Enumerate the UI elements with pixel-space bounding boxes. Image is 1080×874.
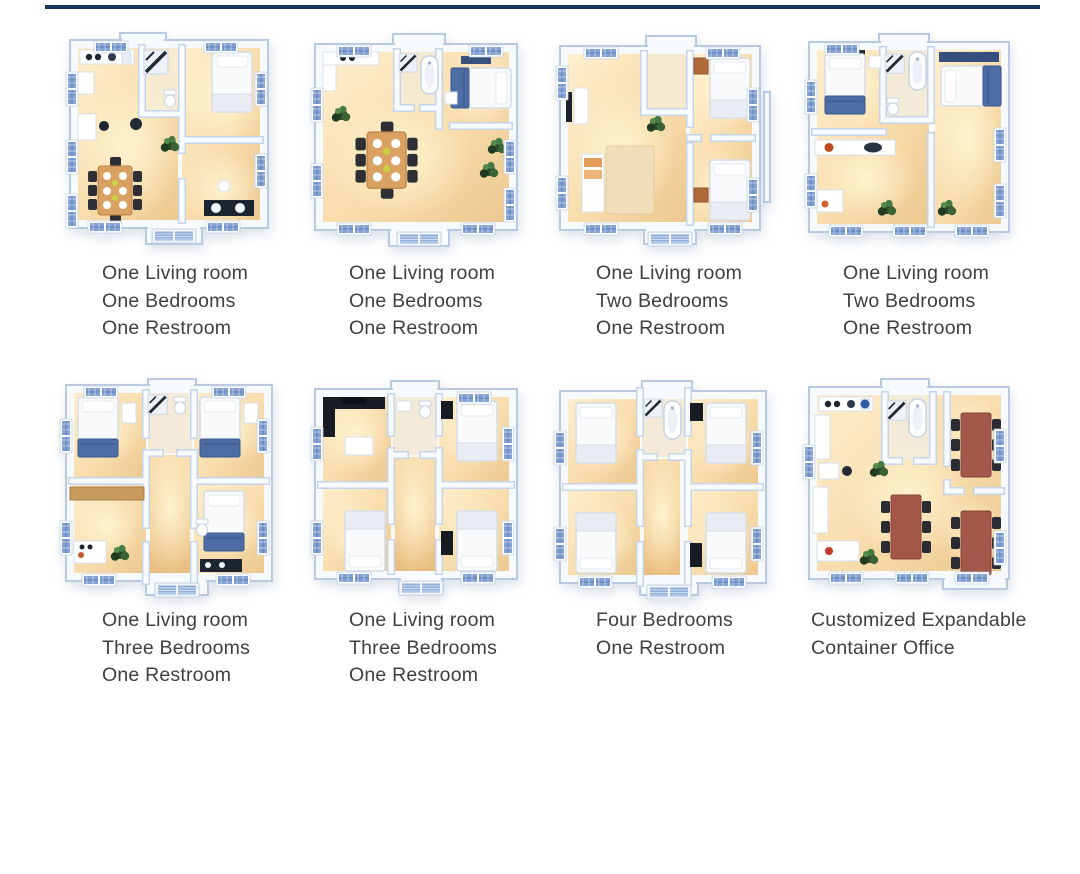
window [337, 45, 371, 57]
wood-counter [70, 487, 144, 500]
window [216, 574, 250, 586]
desk-dark [690, 543, 702, 567]
burner [825, 143, 834, 152]
bathtub [909, 399, 926, 437]
window [805, 80, 817, 114]
floor-plan-1-image [54, 28, 282, 252]
bed [204, 491, 244, 551]
plan-caption: One Living room One Bedrooms One Restroo… [52, 260, 299, 343]
fridge [78, 72, 94, 94]
shower [644, 399, 662, 417]
window [257, 521, 269, 555]
shower [144, 50, 168, 74]
window [708, 223, 742, 235]
door-mat [647, 585, 691, 599]
plan-caption: One Living room Three Bedrooms One Restr… [52, 607, 299, 690]
bed [576, 513, 616, 573]
window [556, 176, 568, 210]
plan-caption: One Living room One Bedrooms One Restroo… [299, 260, 546, 343]
caption-line: One Living room [349, 260, 546, 288]
window [803, 445, 815, 479]
chair [842, 466, 852, 476]
floor-plan-6-image [301, 375, 529, 599]
cabinet [813, 487, 828, 533]
window [255, 72, 267, 106]
window [504, 140, 516, 174]
window [457, 392, 491, 404]
toilet [196, 519, 208, 536]
product-card-4: One Living room Two Bedrooms One Restroo… [793, 28, 1040, 375]
window [554, 431, 566, 465]
window [706, 47, 740, 59]
caption-line: One Bedrooms [349, 288, 546, 316]
sink [864, 143, 882, 153]
island [345, 437, 373, 455]
bed [457, 511, 497, 571]
bed [706, 513, 746, 573]
caption-line: One Restroom [349, 662, 546, 690]
toilet [164, 90, 176, 107]
window [337, 572, 371, 584]
plan-caption: One Living room Two Bedrooms One Restroo… [546, 260, 793, 343]
window [895, 572, 929, 584]
shower [887, 401, 906, 420]
caption-line: Container Office [811, 635, 1040, 663]
caption-line: One Restroom [596, 635, 793, 663]
window [206, 221, 240, 233]
window [469, 45, 503, 57]
caption-line: One Restroom [843, 315, 1040, 343]
toilet [174, 397, 186, 414]
basin [397, 401, 411, 411]
bed [576, 403, 616, 463]
bed [825, 54, 865, 114]
tv-cabinet [574, 88, 588, 124]
bed [345, 511, 385, 571]
nightstand [694, 58, 708, 74]
window [60, 419, 72, 453]
window [337, 223, 371, 235]
window [504, 188, 516, 222]
rug [606, 146, 654, 214]
floor-plan-3-image [548, 28, 776, 252]
reception-desk [817, 541, 859, 561]
window [578, 576, 612, 588]
window [82, 574, 116, 586]
window [94, 41, 128, 53]
bed [710, 58, 750, 118]
caption-line: One Restroom [102, 315, 299, 343]
plan-caption: One Living room Two Bedrooms One Restroo… [793, 260, 1040, 343]
product-card-3: One Living room Two Bedrooms One Restroo… [546, 28, 793, 375]
range-hood [341, 397, 365, 404]
desk [244, 403, 258, 423]
caption-line: One Living room [843, 260, 1040, 288]
toilet [887, 98, 899, 115]
floor-plan-4-image [795, 28, 1023, 252]
window [825, 43, 859, 55]
stool [218, 180, 230, 192]
floor-plan-grid: One Living room One Bedrooms One Restroo… [52, 28, 1040, 722]
caption-line: Three Bedrooms [102, 635, 299, 663]
bed [212, 52, 252, 112]
window [66, 72, 78, 106]
window [502, 427, 514, 461]
cabinet [817, 190, 843, 212]
window [994, 184, 1006, 218]
window [255, 154, 267, 188]
window [747, 88, 759, 122]
caption-line: One Living room [596, 260, 793, 288]
window [461, 572, 495, 584]
shower [148, 395, 167, 414]
window [747, 178, 759, 212]
window [829, 572, 863, 584]
window [311, 164, 323, 198]
caption-line: One Restroom [596, 315, 793, 343]
window [84, 386, 118, 398]
window [66, 140, 78, 174]
plan-caption: Four Bedrooms One Restroom [546, 607, 793, 662]
plan-caption: One Living room Three Bedrooms One Restr… [299, 607, 546, 690]
window [994, 128, 1006, 162]
desk [819, 463, 839, 479]
bed [451, 68, 511, 108]
caption-line: Three Bedrooms [349, 635, 546, 663]
window [311, 521, 323, 555]
wok-pan [861, 400, 870, 409]
conference-table [881, 495, 931, 559]
floor-plan-5-image [54, 375, 282, 599]
window [751, 527, 763, 561]
window [204, 41, 238, 53]
stove [74, 541, 106, 563]
window [554, 527, 566, 561]
caption-line: One Restroom [102, 662, 299, 690]
window [257, 419, 269, 453]
side-desk [78, 114, 96, 140]
window [712, 576, 746, 588]
desk-dark [441, 531, 453, 555]
product-card-8: Customized Expandable Container Office [793, 375, 1040, 722]
desk [122, 403, 136, 423]
conference-table [951, 413, 1001, 477]
bed [200, 397, 240, 457]
caption-line: One Living room [349, 607, 546, 635]
appliance [690, 403, 703, 421]
window [584, 223, 618, 235]
shower [399, 54, 417, 72]
top-divider [45, 5, 1040, 9]
bathtub [421, 56, 438, 94]
caption-line: One Living room [102, 607, 299, 635]
office-chair [130, 118, 142, 130]
nightstand [869, 56, 881, 68]
window [311, 88, 323, 122]
bathtub [664, 401, 681, 439]
caption-line: Two Bedrooms [596, 288, 793, 316]
nightstand [445, 92, 457, 104]
shower [885, 54, 904, 73]
dresser [939, 52, 999, 62]
chair [99, 121, 109, 131]
window [88, 221, 122, 233]
window [66, 194, 78, 228]
caption-line: Four Bedrooms [596, 607, 793, 635]
appliance [441, 401, 453, 419]
bed [710, 160, 750, 220]
product-card-6: One Living room Three Bedrooms One Restr… [299, 375, 546, 722]
window [556, 66, 568, 100]
window [805, 174, 817, 208]
caption-line: One Restroom [349, 315, 546, 343]
door-mat [648, 232, 692, 246]
caption-line: One Bedrooms [102, 288, 299, 316]
window [955, 572, 989, 584]
conference-table [951, 511, 1001, 575]
door-mat [155, 583, 199, 597]
toilet [419, 401, 431, 418]
window [829, 225, 863, 237]
caption-line: One Living room [102, 260, 299, 288]
window [751, 431, 763, 465]
product-card-2: One Living room One Bedrooms One Restroo… [299, 28, 546, 375]
bed [78, 397, 118, 457]
nightstand [694, 188, 708, 202]
product-card-1: One Living room One Bedrooms One Restroo… [52, 28, 299, 375]
product-card-5: One Living room Three Bedrooms One Restr… [52, 375, 299, 722]
bed [457, 401, 497, 461]
plan-caption: Customized Expandable Container Office [793, 607, 1040, 662]
window [893, 225, 927, 237]
window [311, 427, 323, 461]
window [212, 386, 246, 398]
bathtub [909, 52, 926, 90]
cabinet [815, 415, 830, 459]
caption-line: Two Bedrooms [843, 288, 1040, 316]
floor-plan-2-image [301, 28, 529, 252]
door-mat [397, 232, 441, 246]
window [584, 47, 618, 59]
bed [941, 66, 1001, 106]
door-mat [152, 229, 196, 243]
caption-line: Customized Expandable [811, 607, 1040, 635]
door-mat [399, 581, 443, 595]
floor-plan-8-image [795, 375, 1023, 599]
window [60, 521, 72, 555]
product-card-7: Four Bedrooms One Restroom [546, 375, 793, 722]
window [994, 429, 1006, 463]
bed [706, 403, 746, 463]
window [502, 521, 514, 555]
window [994, 531, 1006, 565]
window [955, 225, 989, 237]
window [461, 223, 495, 235]
floor-plan-7-image [548, 375, 776, 599]
